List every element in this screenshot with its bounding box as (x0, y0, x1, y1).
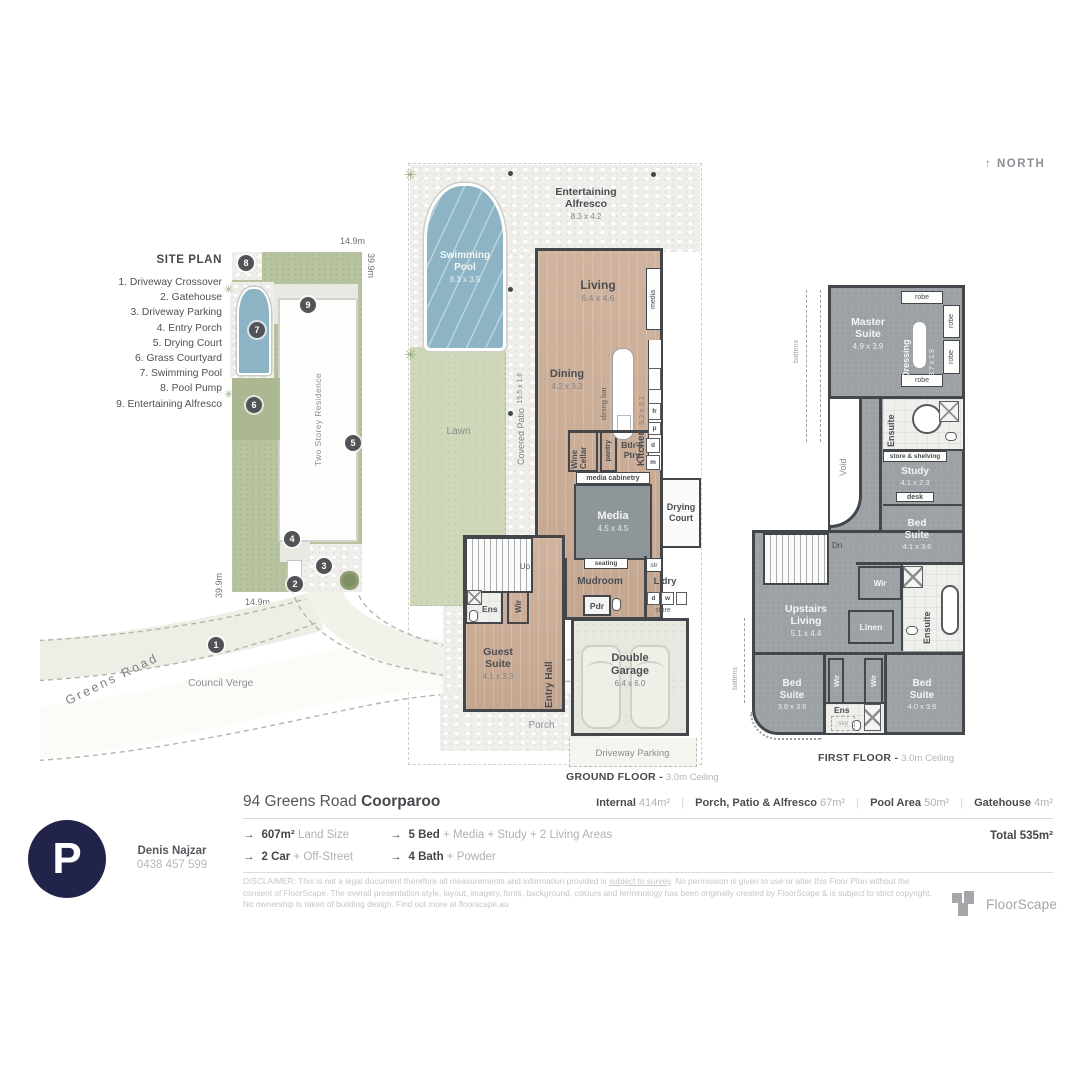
battens-text: battens (793, 340, 800, 363)
marker-8: 8 (238, 255, 254, 271)
covered-patio-name: Covered Patio (516, 408, 526, 465)
alfresco-dims: 8.3 x 4.2 (545, 212, 627, 221)
agent-name: Denis Najzar (118, 845, 226, 857)
dining-bar-text: dining bar (599, 387, 608, 420)
address-street: 94 Greens Road (243, 793, 357, 810)
battens-text: battens (732, 667, 739, 690)
area-label: Gatehouse (974, 797, 1031, 809)
robe-label: robe (915, 377, 929, 384)
bath-icon (941, 585, 959, 635)
robe-right-1: robe (943, 305, 960, 338)
disclaimer-underlined: subject to survey (609, 876, 671, 886)
covered-patio-label: Covered Patio 15.5 x 1.6 (512, 325, 530, 465)
marker-7: 7 (249, 322, 265, 338)
master-1: Master (836, 316, 900, 328)
study-label: Study 4.1 x 2.3 (885, 466, 945, 488)
wir-b2-text: Wir (869, 675, 878, 687)
arrow-icon: → (243, 829, 255, 841)
ens-bottom-label: Ens (834, 705, 850, 715)
agent-details: Denis Najzar 0438 457 599 (118, 845, 226, 871)
porch-label: Porch (514, 720, 569, 732)
feature-bold: 4 Bath (409, 851, 444, 863)
lawn-label: Lawn (436, 426, 481, 438)
sky-text: sky (838, 720, 848, 727)
toilet-icon (945, 432, 957, 441)
dressing-text: Dressing (901, 339, 911, 378)
ensuite-text: Ensuite (886, 414, 896, 447)
marker-5: 5 (345, 435, 361, 451)
garage-2: Garage (588, 665, 672, 678)
p-label: p (653, 425, 657, 432)
battens-line (744, 618, 745, 703)
floorscape-name: FloorScape (986, 897, 1057, 912)
area-pool: Pool Area 50m² (870, 797, 949, 809)
master-2: Suite (836, 328, 900, 340)
gf-caption-main: GROUND FLOOR - (566, 771, 663, 783)
address-suburb: Coorparoo (361, 793, 440, 810)
bath-icon (912, 404, 942, 434)
floorscape-brand: FloorScape (952, 891, 1057, 917)
dining-bar-label: dining bar (599, 358, 608, 420)
drying-court-label: Drying Court (667, 502, 696, 523)
toilet-icon (906, 626, 918, 635)
bed-mid-2: Suite (888, 530, 946, 542)
address: 94 Greens Road Coorparoo (243, 793, 440, 811)
battens-label: battens (793, 315, 800, 363)
post-dot (651, 172, 656, 177)
shower-icon (903, 566, 923, 588)
dryer-icon: d (647, 592, 660, 605)
kitchen-dims: 5.2 x 3.1 (637, 396, 646, 425)
legend-item: 2. Gatehouse (58, 290, 222, 305)
study-dims: 4.1 x 2.3 (885, 479, 945, 488)
media-cabinetry-label: media cabinetry (586, 475, 639, 482)
island-bench (612, 348, 634, 440)
up-label: Up (514, 562, 536, 571)
ldry-label: L'dry (646, 576, 684, 587)
palm-icon: ✳ (224, 283, 233, 296)
guest-wir: Wir (507, 588, 529, 624)
lawn-name: Lawn (436, 426, 481, 438)
store-shelving-label: store & shelving (890, 453, 941, 460)
area-internal: Internal 414m² (596, 797, 670, 809)
marker-1: 1 (208, 637, 224, 653)
battens-line (820, 290, 821, 442)
robe-label: robe (948, 314, 955, 328)
site-plan-title: SITE PLAN (58, 254, 222, 266)
wir-mid-text: Wir (874, 579, 887, 588)
upstairs-living-label: Upstairs Living 5.1 x 4.4 (770, 603, 842, 638)
store-shelving-bar: store & shelving (883, 451, 947, 462)
agency-logo: P (28, 820, 106, 898)
seating-bar: seating (584, 558, 628, 569)
arrow-icon: → (390, 851, 402, 863)
area-label: Internal (596, 797, 636, 809)
living-label: Living 6.4 x 4.6 (558, 278, 638, 303)
robe-label: robe (915, 294, 929, 301)
dressing-rug (913, 322, 926, 368)
bed-suite-left-label: Bed Suite 3.8 x 3.6 (762, 678, 822, 711)
footer-divider (243, 818, 1053, 819)
feature-bold: 2 Car (262, 851, 291, 863)
upstairs-dims: 5.1 x 4.4 (770, 629, 842, 638)
area-value: 4m² (1034, 797, 1053, 809)
covered-patio-dims: 15.5 x 1.6 (517, 373, 524, 404)
marker-4: 4 (284, 531, 300, 547)
legend-item: 9. Entertaining Alfresco (58, 397, 222, 412)
bed-right-dims: 4.0 x 3.6 (892, 703, 952, 712)
robe-top: robe (901, 291, 943, 304)
garage-label: Double Garage 6.4 x 6.0 (588, 652, 672, 688)
arrow-icon: → (390, 829, 402, 841)
floorscape-logo-icon (952, 891, 976, 917)
marker-2: 2 (287, 576, 303, 592)
butlers-pantry-label: Btlr's Ptry (616, 440, 648, 460)
ldry-name: L'dry (646, 576, 684, 587)
palm-icon: ✳ (224, 388, 233, 401)
area-label: Pool Area (870, 797, 921, 809)
void-label: Void (838, 432, 848, 476)
bed-left-1: Bed (762, 678, 822, 690)
ff-wir-b2: Wir (864, 658, 883, 704)
alfresco-label: Entertaining Alfresco 8.3 x 4.2 (545, 186, 627, 221)
pdr-label: Pdr (590, 601, 604, 611)
robe-label: robe (948, 350, 955, 364)
bed-right-1: Bed (892, 678, 952, 690)
post-dot (508, 411, 513, 416)
guest-dims: 4.1 x 3.3 (467, 672, 529, 681)
legend-item: 3. Driveway Parking (58, 305, 222, 320)
total-area: Total 535m² (853, 830, 1053, 842)
ff-stairs (763, 533, 829, 585)
toilet-icon (612, 598, 621, 611)
pool-label: Swimming Pool 8.3 x 3.5 (435, 250, 495, 284)
bed-mid-dims: 4.1 x 3.6 (888, 543, 946, 552)
living-name: Living (558, 278, 638, 292)
divider-pipe: | (856, 797, 859, 809)
site-dim-right: 39.9m (366, 253, 376, 308)
desk-label: desk (907, 494, 923, 501)
marker-6: 6 (246, 397, 262, 413)
area-value: 50m² (924, 797, 949, 809)
gf-swimming-pool: Swimming Pool 8.3 x 3.5 (424, 183, 506, 351)
disclaimer: DISCLAIMER: This is not a legal document… (243, 876, 933, 911)
dressing-label: Dressing (901, 314, 911, 378)
drying-court: Drying Court (661, 478, 701, 548)
driveway-parking-text: Driveway Parking (580, 748, 685, 759)
ensuite-text: Ensuite (922, 611, 932, 644)
wine-cellar-label: Wine Cellar (570, 433, 588, 469)
dn-label: Dn (832, 541, 842, 550)
feature-rest: + Off-Street (293, 851, 353, 863)
upstairs-2: Living (770, 615, 842, 627)
disclaimer-text: DISCLAIMER: This is not a legal document… (243, 876, 609, 886)
btlrs-2: Ptry (616, 450, 648, 460)
master-dims: 4.9 x 3.9 (836, 342, 900, 351)
mudroom-label: Mudroom (568, 576, 632, 588)
dining-name: Dining (538, 368, 596, 381)
battens-line (806, 290, 807, 442)
guest-1: Guest (467, 646, 529, 658)
feature-land-size: →607m² Land Size (243, 829, 349, 841)
media-cabinetry-bar: media cabinetry (576, 472, 650, 484)
divider-pipe: | (681, 797, 684, 809)
gf-wir-text: Wir (514, 600, 523, 613)
feature-rest: + Media + Study + 2 Living Areas (443, 829, 612, 841)
footer-address-row: 94 Greens Road Coorparoo Internal 414m² … (243, 793, 1053, 811)
ground-floor-caption: GROUND FLOOR - 3.0m Ceiling (566, 771, 719, 783)
btlrs-1: Btlr's (616, 440, 648, 450)
guest-2: Suite (467, 658, 529, 670)
palm-icon: ✳ (404, 166, 417, 184)
dressing-dims-text: 3.7 x 1.9 (929, 349, 936, 376)
ens-text: Ens (834, 705, 850, 715)
agent-phone: 0438 457 599 (118, 859, 226, 871)
bed-left-dims: 3.8 x 3.6 (762, 703, 822, 712)
legend-item: 6. Grass Courtyard (58, 351, 222, 366)
feature-bold: 5 Bed (409, 829, 440, 841)
site-plan-legend: SITE PLAN 1. Driveway Crossover 2. Gateh… (58, 254, 222, 412)
post-dot (508, 287, 513, 292)
feature-car: →2 Car + Off-Street (243, 851, 353, 863)
media-room: Media 4.5 x 4.5 (574, 484, 652, 560)
store-label: store (648, 607, 678, 614)
gf-caption-ceiling: 3.0m Ceiling (666, 772, 719, 783)
feature-bold: 607m² (262, 829, 295, 841)
store-text: store (655, 607, 671, 614)
divider-pipe: | (960, 797, 963, 809)
up-text: Up (520, 562, 530, 571)
palm-icon: ✳ (404, 346, 417, 364)
robe-right-2: robe (943, 340, 960, 374)
marker-9: 9 (300, 297, 316, 313)
wir-b1-text: Wir (832, 675, 841, 687)
ff-linen: Linen (848, 610, 894, 644)
seating-label: seating (595, 560, 618, 567)
bed-suite-right-label: Bed Suite 4.0 x 3.6 (892, 678, 952, 711)
dining-dims: 4.2 x 3.3 (538, 382, 596, 391)
ff-caption-main: FIRST FLOOR - (818, 752, 898, 764)
ff-ensuite-right-label: Ensuite (922, 592, 932, 644)
linen-text: Linen (860, 622, 883, 632)
media-wall-cabinet: media (646, 268, 661, 330)
council-verge-label: Council Verge (188, 677, 254, 689)
floorplan-page: { "north": "↑ NORTH", "site_plan": { "ti… (0, 0, 1080, 1080)
gf-ens-text: Ens (482, 604, 498, 614)
legend-item: 8. Pool Pump (58, 381, 222, 396)
marker-3: 3 (316, 558, 332, 574)
media-name: Media (597, 510, 628, 523)
legend-item: 7. Swimming Pool (58, 366, 222, 381)
dn-text: Dn (832, 541, 842, 550)
area-summary: Internal 414m² | Porch, Patio & Alfresco… (596, 797, 1053, 809)
residence-label: Two Storey Residence (313, 373, 323, 466)
fr-label: fr (652, 408, 657, 415)
battens-label-2: battens (732, 642, 739, 690)
legend-item: 1. Driveway Crossover (58, 275, 222, 290)
site-residence: Two Storey Residence (278, 298, 358, 542)
shower-icon (864, 704, 881, 731)
north-indicator: ↑ NORTH (985, 158, 1070, 170)
media-room-label: Media 4.5 x 4.5 (597, 510, 628, 533)
feature-rest: Land Size (298, 829, 349, 841)
ff-caption-ceiling: 3.0m Ceiling (901, 753, 954, 764)
ff-wir-b1: Wir (828, 658, 844, 704)
dressing-dims: 3.7 x 1.9 (929, 320, 936, 376)
bed-right-2: Suite (892, 690, 952, 702)
footer-divider (243, 872, 1053, 873)
site-bush (340, 571, 359, 590)
drying-2: Court (667, 513, 696, 524)
void-text: Void (838, 458, 848, 476)
d-label: d (651, 442, 655, 449)
area-gatehouse: Gatehouse 4m² (974, 797, 1053, 809)
media-dims: 4.5 x 4.5 (597, 524, 628, 533)
bed-suite-mid-label: Bed Suite 4.1 x 3.6 (888, 518, 946, 551)
dw-w: w (665, 595, 670, 602)
agency-logo-letter: P (52, 834, 81, 884)
entry-hall-text: Entry Hall (544, 661, 555, 708)
upstairs-1: Upstairs (770, 603, 842, 615)
media-wall-label: media (650, 289, 657, 308)
wine-text: Wine (570, 433, 579, 469)
str-label: str (650, 562, 657, 569)
str-closet: str (646, 558, 662, 572)
pantry-label: pantry (605, 440, 612, 461)
entry-hall-label: Entry Hall (544, 632, 555, 708)
toilet-icon (469, 610, 478, 622)
area-porch: Porch, Patio & Alfresco 67m² (695, 797, 845, 809)
sky-label: sky (831, 716, 855, 731)
ff-wir-mid: Wir (858, 566, 902, 600)
mudroom-name: Mudroom (568, 576, 632, 588)
cellar-text: Cellar (579, 433, 588, 469)
feature-bath: →4 Bath + Powder (390, 851, 496, 863)
desk-bar: desk (896, 492, 934, 502)
pool-name: Swimming Pool (435, 250, 495, 274)
guest-ens-label: Ens (482, 604, 498, 614)
master-suite-label: Master Suite 4.9 x 3.9 (836, 316, 900, 351)
study-name: Study (885, 466, 945, 478)
feature-rest: + Powder (447, 851, 496, 863)
arrow-icon: → (243, 851, 255, 863)
area-value: 414m² (639, 797, 670, 809)
first-floor-caption: FIRST FLOOR - 3.0m Ceiling (818, 752, 954, 764)
feature-bed: →5 Bed + Media + Study + 2 Living Areas (390, 829, 612, 841)
washer-icon: w (661, 592, 674, 605)
dining-label: Dining 4.2 x 3.3 (538, 368, 596, 391)
drying-1: Drying (667, 502, 696, 513)
garage-1: Double (588, 652, 672, 665)
site-dim-top: 14.9m (305, 236, 365, 246)
porch-text: Porch (514, 720, 569, 732)
garage-dims: 6.4 x 6.0 (588, 679, 672, 688)
guest-suite-label: Guest Suite 4.1 x 3.3 (467, 646, 529, 681)
tub-icon (676, 592, 687, 605)
master-ensuite-label: Ensuite (886, 403, 896, 447)
pool-dims: 8.3 x 3.5 (435, 275, 495, 284)
area-value: 67m² (820, 797, 845, 809)
pdr-room: Pdr (583, 595, 611, 616)
post-dot (508, 171, 513, 176)
bed-mid-1: Bed (888, 518, 946, 530)
living-dims: 6.4 x 4.6 (558, 293, 638, 303)
dw-d: d (652, 595, 656, 602)
alfresco-name: Entertaining Alfresco (545, 186, 627, 211)
shower-icon (939, 401, 959, 422)
area-label: Porch, Patio & Alfresco (695, 797, 817, 809)
shower-icon (467, 590, 482, 605)
driveway-parking-label: Driveway Parking (580, 748, 685, 759)
legend-item: 5. Drying Court (58, 336, 222, 351)
legend-item: 4. Entry Porch (58, 321, 222, 336)
bed-left-2: Suite (762, 690, 822, 702)
